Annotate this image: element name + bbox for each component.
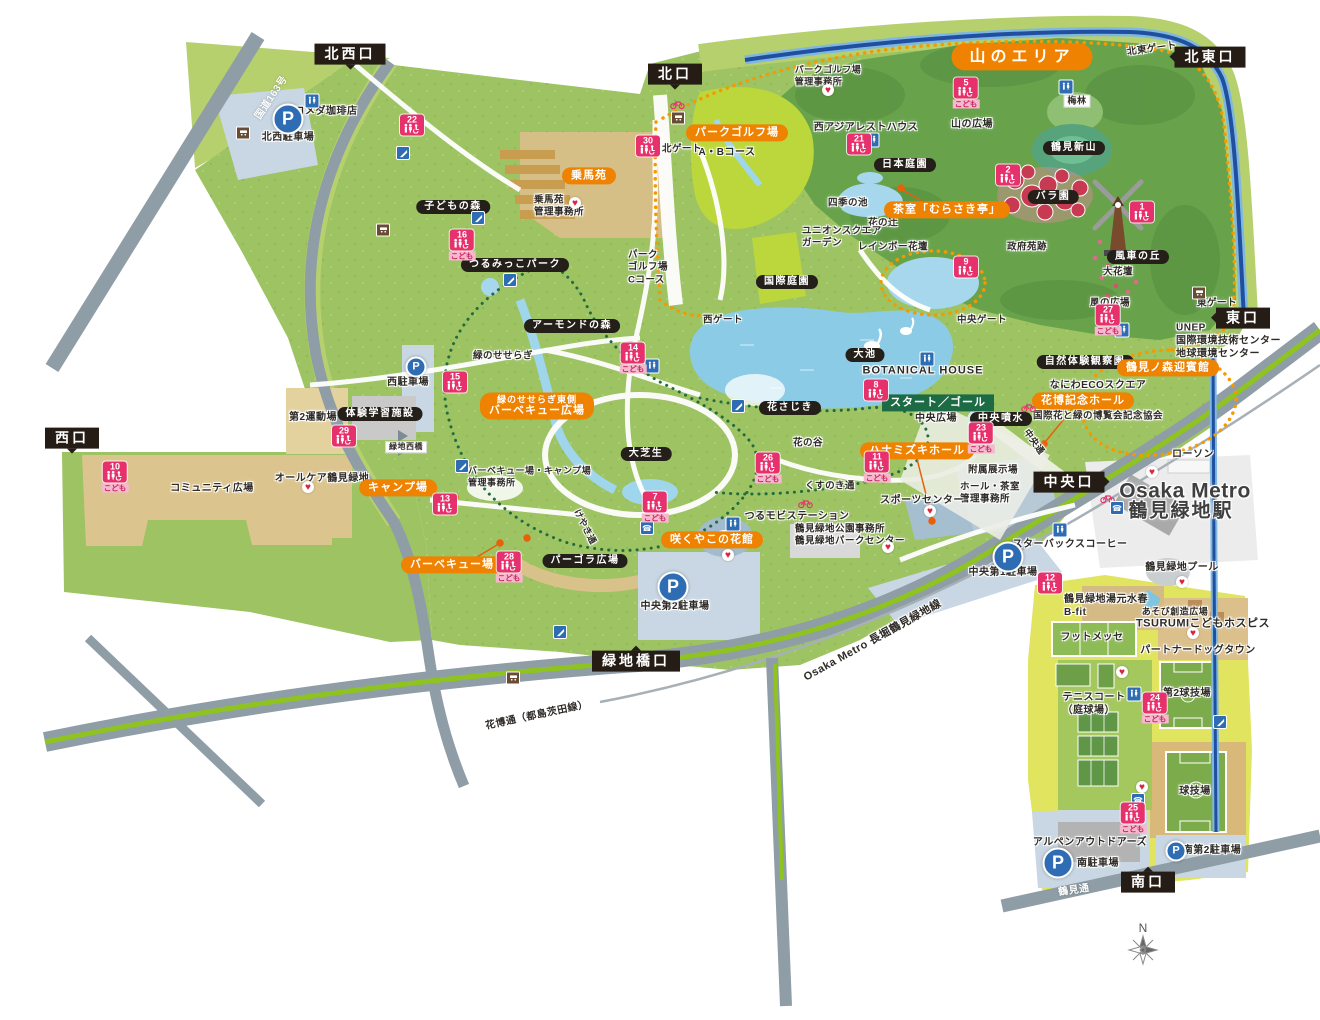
map-label: バーベキュー場・キャンプ場管理事務所	[468, 465, 591, 488]
map-label: オールケア鶴見緑地	[275, 473, 370, 485]
facility-badge: バラ園	[1028, 190, 1079, 204]
map-label: 南駐車場	[1077, 858, 1119, 870]
area-badge: キャンプ場	[359, 479, 437, 496]
playground-icon	[396, 146, 410, 160]
map-label: 北ゲート	[662, 143, 702, 154]
area-badge: 鶴見ノ森迎賓館	[1117, 359, 1219, 376]
area-badge: 緑のせせらぎ東側バーベキュー広場	[480, 393, 594, 420]
map-label: ローソン	[1172, 449, 1214, 461]
facility-badge: 花さじき	[759, 401, 821, 415]
toilet-marker: 28こども	[496, 552, 523, 583]
toilet-marker: 5こども	[953, 78, 980, 109]
map-label: なにわECOスクエア	[1050, 380, 1147, 392]
phone-icon: ☎	[1110, 501, 1124, 515]
park-map: N 北西口北口北東口東口西口中央口緑地橋口南口山のエリアパークゴルフ場乗馬苑茶室…	[0, 0, 1320, 1020]
labels-layer: 北西口北口北東口東口西口中央口緑地橋口南口山のエリアパークゴルフ場乗馬苑茶室「む…	[0, 0, 1320, 1020]
toilet-marker: 29	[332, 426, 356, 447]
map-label: レインボー花壇	[858, 241, 928, 252]
map-label: けやき通	[572, 508, 599, 547]
toilet-marker: 13	[433, 494, 457, 515]
map-label: 梅林	[1063, 95, 1090, 108]
parking-icon: P	[993, 542, 1024, 573]
facility-badge: 風車の丘	[1107, 250, 1169, 264]
map-label: 花の谷	[793, 437, 823, 448]
bus-stop-icon	[506, 672, 520, 685]
map-label: 四季の池	[828, 197, 868, 208]
facility-badge: 鶴見新山	[1043, 141, 1105, 155]
facility-badge: つるみっこパーク	[461, 258, 569, 272]
toilet-marker: 22	[400, 115, 424, 136]
map-label: 山の広場	[951, 119, 993, 131]
entrance-badge: 西口	[45, 428, 99, 449]
map-label: 緑のせせらぎ	[473, 350, 533, 361]
map-label: 西駐車場	[387, 377, 429, 389]
map-label: アルペンアウトドアーズ	[1033, 837, 1147, 849]
map-label: スポーツセンター	[880, 495, 964, 507]
parking-icon: P	[658, 572, 689, 603]
restroom-icon	[1059, 80, 1074, 95]
area-badge: 花博記念ホール	[1032, 392, 1134, 409]
restroom-icon	[1053, 523, 1068, 538]
bus-stop-icon	[236, 127, 250, 140]
entrance-badge: 中央口	[1034, 472, 1105, 493]
map-label: 中央ゲート	[957, 314, 1007, 325]
toilet-marker: 30	[636, 136, 660, 157]
map-label: ホール・茶室管理事務所	[960, 482, 1020, 507]
toilet-marker: 26こども	[755, 453, 782, 484]
toilet-marker: 15	[443, 372, 467, 393]
aed-icon: ♥	[1116, 666, 1128, 678]
map-label: A・Bコース	[699, 147, 756, 159]
phone-icon: ☎	[640, 521, 654, 535]
bus-stop-icon	[671, 112, 685, 125]
toilet-marker: 1	[1130, 202, 1154, 223]
map-label: 南第2駐車場	[1183, 845, 1242, 857]
map-label: 政府苑跡	[1007, 241, 1047, 252]
map-label: 大花壇	[1103, 266, 1133, 277]
entrance-badge: 北口	[648, 64, 702, 85]
bike-share-icon	[669, 99, 685, 110]
facility-badge: アーモンドの森	[524, 319, 620, 333]
aed-icon: ♥	[722, 549, 734, 561]
aed-icon: ♥	[1136, 781, 1148, 793]
toilet-marker: 27こども	[1095, 305, 1122, 336]
map-label: 鶴見緑地プール	[1145, 562, 1219, 574]
entrance-badge: 北東口	[1175, 47, 1246, 68]
area-badge: 茶室「むらさき亭」	[884, 201, 1010, 218]
map-label: 中央広場	[915, 413, 957, 425]
aed-icon: ♥	[822, 84, 834, 96]
playground-icon	[471, 211, 485, 225]
map-label: つるモビステーション	[745, 511, 850, 523]
map-label: 鶴見緑地駅	[1128, 501, 1233, 524]
restroom-icon	[920, 352, 935, 367]
map-label: Osaka Metro 長堀鶴見緑地線	[802, 598, 944, 685]
start-goal-badge: スタート／ゴール	[882, 394, 994, 411]
restroom-icon	[305, 94, 320, 109]
parking-icon: P	[273, 104, 304, 135]
playground-icon	[553, 625, 567, 639]
bus-stop-icon	[1192, 287, 1206, 300]
toilet-marker: 23こども	[968, 423, 995, 454]
map-label: スターバックスコーヒー	[1012, 539, 1127, 551]
map-label: パークゴルフ場Cコース	[628, 249, 668, 286]
entrance-badge: 南口	[1121, 872, 1175, 893]
map-label: 中央通	[1021, 427, 1046, 457]
playground-icon	[731, 399, 745, 413]
restroom-icon	[1127, 687, 1142, 702]
aed-icon: ♥	[924, 505, 936, 517]
toilet-marker: 12	[1038, 573, 1062, 594]
toilet-marker: 10こども	[102, 462, 129, 493]
facility-badge: 大芝生	[621, 447, 672, 461]
facility-badge: 大池	[846, 348, 885, 362]
map-label: 第2球技場	[1163, 688, 1211, 700]
aed-icon: ♥	[1176, 576, 1188, 588]
parking-icon: P	[406, 357, 427, 378]
map-label: 国際花と緑の博覧会記念協会	[1033, 410, 1163, 421]
toilet-marker: 24こども	[1142, 693, 1169, 724]
entrance-badge: 北西口	[315, 44, 386, 65]
map-label: 鶴見通	[1058, 883, 1091, 899]
bus-stop-icon	[376, 224, 390, 237]
map-label: 第2運動場	[289, 412, 337, 424]
toilet-marker: 9	[954, 257, 978, 278]
map-label: 鶴見緑地湯元水春B-fit	[1064, 593, 1148, 619]
aed-icon: ♥	[1187, 627, 1199, 639]
toilet-marker: 21	[847, 134, 871, 155]
aed-icon: ♥	[882, 541, 894, 553]
toilet-marker: 25こども	[1120, 803, 1147, 834]
facility-badge: 国際庭園	[756, 275, 818, 289]
playground-icon	[455, 459, 469, 473]
area-badge: 咲くやこの花館	[661, 531, 763, 548]
map-label: 中央第2駐車場	[640, 601, 709, 613]
restroom-icon	[645, 359, 660, 374]
toilet-marker: 16こども	[449, 230, 476, 261]
map-label: コミュニティ広場	[170, 483, 253, 495]
aed-icon: ♥	[1146, 466, 1158, 478]
toilet-marker: 2	[996, 165, 1020, 186]
toilet-marker: 7こども	[642, 492, 669, 523]
map-label: 球技場	[1179, 786, 1211, 798]
restroom-icon	[726, 517, 741, 532]
area-badge: バーベキュー場	[401, 556, 503, 573]
toilet-marker: 8	[864, 380, 888, 401]
map-label: 花博通（都島茨田線）	[484, 699, 589, 733]
toilet-marker: 14こども	[620, 343, 647, 374]
aed-icon: ♥	[302, 481, 314, 493]
area-badge: 山のエリア	[951, 43, 1092, 70]
playground-icon	[503, 273, 517, 287]
facility-badge: パーゴラ広場	[543, 554, 628, 568]
bike-share-icon	[797, 498, 813, 509]
parking-icon: P	[1166, 841, 1187, 862]
map-label: テニスコート（庭球場）	[1063, 691, 1126, 717]
entrance-badge: 緑地橋口	[592, 651, 680, 672]
area-badge: パークゴルフ場	[686, 124, 788, 141]
entrance-badge: 東口	[1216, 308, 1270, 329]
parking-icon: P	[1043, 848, 1074, 879]
map-label: あそび創造広場	[1142, 607, 1209, 618]
map-label: 西ゲート	[703, 314, 743, 325]
map-label: TSURUMIこどもホスピス	[1136, 617, 1270, 630]
toilet-marker: 11こども	[864, 452, 891, 483]
facility-badge: 体験学習施設	[338, 407, 423, 421]
area-badge: 乗馬苑	[562, 167, 616, 184]
aed-icon: ♥	[569, 197, 581, 209]
map-label: 附属展示場	[968, 464, 1018, 475]
map-label: パートナードッグタウン	[1140, 645, 1256, 657]
map-label: 緑地西橋	[385, 441, 427, 453]
facility-badge: 日本庭園	[874, 158, 936, 172]
map-label: コメダ珈琲店	[295, 106, 358, 118]
map-label: フットメッセ	[1061, 632, 1124, 644]
map-label: くすのき通	[805, 480, 855, 491]
playground-icon	[1213, 715, 1227, 729]
